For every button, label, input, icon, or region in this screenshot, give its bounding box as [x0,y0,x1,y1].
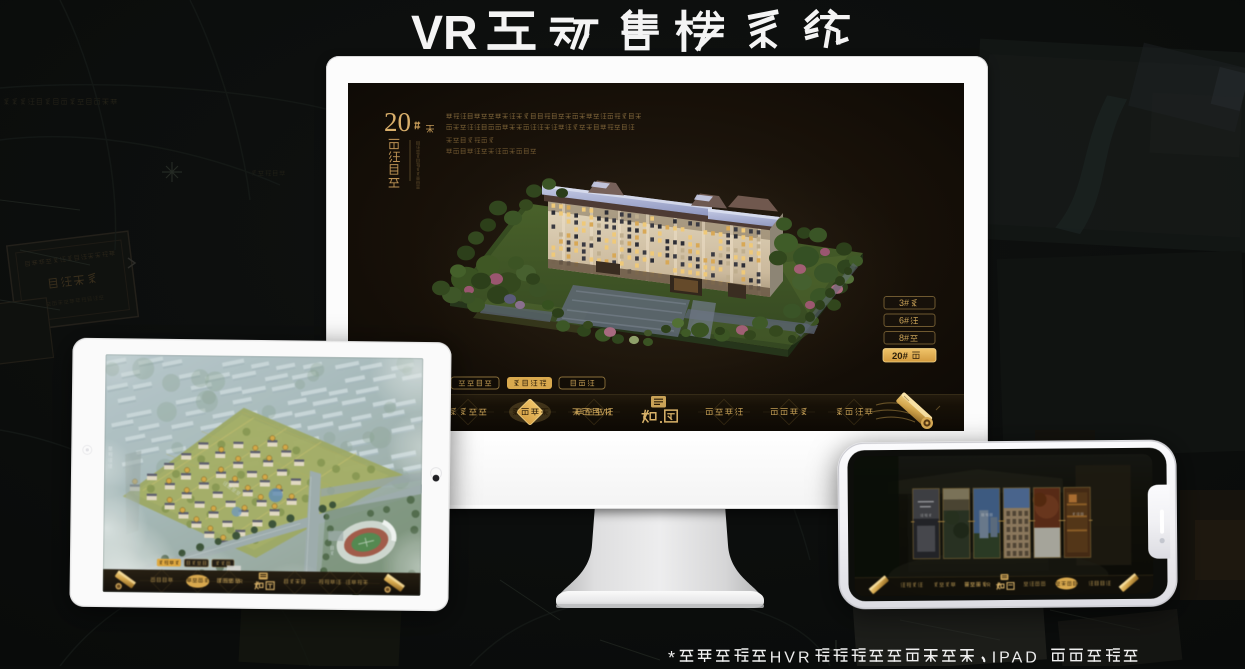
svg-text:VR: VR [411,7,478,60]
svg-text:VR: VR [236,579,243,585]
svg-text:20#: 20# [892,351,909,362]
svg-text:20: 20 [384,107,411,137]
svg-text:3#: 3# [899,298,909,308]
svg-text:VR: VR [600,408,611,417]
svg-text:6#: 6# [899,316,909,326]
svg-text:*: * [668,648,675,668]
svg-text:VR: VR [984,583,991,589]
svg-text:IPAD: IPAD [992,650,1040,667]
svg-text:8#: 8# [899,333,909,343]
svg-text:HVR: HVR [770,650,813,667]
